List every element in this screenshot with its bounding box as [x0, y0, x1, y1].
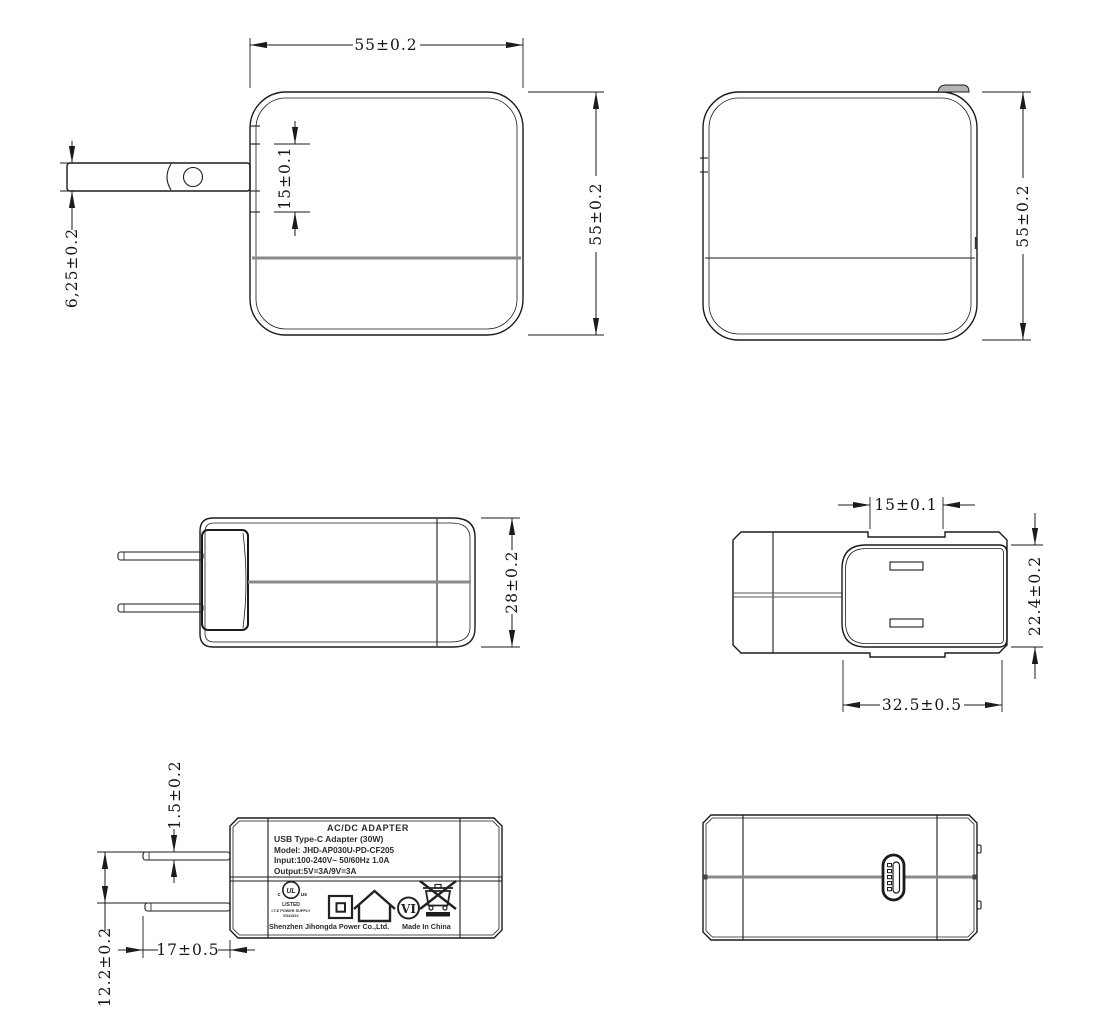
plug-blade	[67, 163, 250, 191]
ul-file-number: E341922	[283, 914, 298, 918]
plug-blade-upper	[143, 852, 230, 860]
dim-blade-width-text: 6,25±0.2	[63, 228, 81, 308]
rear-view: 55±0.2	[700, 85, 1032, 340]
ul-mark: UL c us LISTED I.T.E POWER SUPPLY E34192…	[272, 882, 311, 918]
dim-blade-width: 6,25±0.2	[60, 141, 81, 308]
label-face-view: AC/DC ADAPTER USB Type-C Adapter (30W) M…	[96, 760, 502, 1007]
dim-recess-width-text: 15±0.1	[874, 496, 937, 514]
top-view: 28±0.2	[118, 518, 521, 647]
body-outline	[733, 532, 1007, 657]
indoor-use-house-icon	[354, 891, 395, 921]
dim-base-height-text: 22.4±0.2	[1026, 556, 1044, 636]
plug-base-curve	[243, 533, 246, 628]
blade-slot-lower	[890, 619, 923, 627]
efficiency-vi-icon: VI	[398, 898, 419, 919]
dim-depth-text: 28±0.2	[503, 550, 521, 613]
front-view: 55±0.2 55±0.2 15±0.1 6,25±0.2	[60, 36, 605, 335]
ul-us: us	[301, 892, 307, 898]
dim-recess-text: 15±0.1	[276, 146, 294, 209]
class2-double-insulation-icon	[329, 896, 352, 918]
dim-width-top: 55±0.2	[250, 36, 523, 88]
label-title: AC/DC ADAPTER	[327, 823, 409, 833]
ul-listed: LISTED	[282, 902, 300, 908]
label-input: Input:100-240V~ 50/60Hz 1.0A	[274, 856, 389, 865]
ul-type: I.T.E POWER SUPPLY	[272, 909, 311, 913]
origin-text: Made In China	[402, 922, 452, 931]
dim-blade-length-text: 17±0.5	[156, 941, 219, 959]
dim-blade-thickness: 1.5±0.2	[166, 760, 184, 883]
body-outline	[250, 92, 523, 335]
plug-base-inner	[846, 549, 1004, 644]
label-subtitle: USB Type-C Adapter (30W)	[274, 834, 383, 844]
plug-blade-lower	[118, 604, 203, 612]
dim-blade-spacing-text: 12.2±0.2	[96, 927, 114, 1007]
dim-height-right-text: 55±0.2	[587, 182, 605, 245]
blade-slot-upper	[890, 562, 923, 570]
dim-width-top-text: 55±0.2	[354, 36, 417, 54]
usb-c-port	[883, 855, 904, 900]
dim-recess-width: 15±0.1	[838, 496, 975, 529]
body-outline	[703, 92, 977, 340]
blade-hole	[184, 168, 203, 187]
ul-c: c	[277, 892, 280, 898]
drawing-sheet: 55±0.2 55±0.2 15±0.1 6,25±0.2	[0, 0, 1100, 1011]
dim-recess-height: 15±0.1	[274, 121, 310, 236]
dim-height-right: 55±0.2	[982, 92, 1032, 340]
dim-depth: 28±0.2	[481, 518, 521, 647]
dim-blade-length: 17±0.5	[118, 916, 255, 959]
body-inner-seam	[709, 98, 971, 334]
label-output: Output:5V=3A/9V=3A	[274, 867, 356, 876]
manufacturer-text: Shenzhen Jihongda Power Co.,Ltd.	[269, 922, 389, 931]
rating-label: AC/DC ADAPTER USB Type-C Adapter (30W) M…	[274, 823, 409, 876]
output-face-view	[703, 815, 981, 940]
plug-blade-upper	[118, 552, 203, 560]
dim-base-width: 32.5±0.5	[843, 660, 1002, 714]
plug-blade-lower	[145, 903, 230, 911]
parting-cap-left	[703, 875, 708, 880]
plug-base-outline	[842, 545, 1007, 647]
efficiency-vi-text: VI	[400, 902, 416, 916]
weee-crossed-bin-icon	[420, 881, 456, 917]
dim-blade-spacing: 12.2±0.2	[96, 852, 147, 1007]
top-tab	[938, 85, 969, 92]
dim-base-width-text: 32.5±0.5	[882, 696, 962, 714]
technical-drawing-canvas: 55±0.2 55±0.2 15±0.1 6,25±0.2	[0, 0, 1100, 1011]
edge-ticks	[700, 158, 976, 249]
dim-height-right-text: 55±0.2	[1014, 184, 1032, 247]
blade-fold-arc	[167, 164, 171, 190]
dim-height-right: 55±0.2	[528, 92, 605, 335]
bottom-view: 15±0.1 22.4±0.2 32.5±0.5	[733, 496, 1044, 714]
folding-plug-base	[202, 530, 248, 630]
parting-cap-right	[973, 875, 978, 880]
label-model: Model: JHD-AP030U-PD-CF205	[274, 846, 395, 855]
dim-base-height: 22.4±0.2	[1011, 513, 1044, 679]
ul-letters: UL	[286, 888, 295, 895]
recess-step-lines	[250, 126, 260, 212]
dim-blade-thickness-text: 1.5±0.2	[166, 760, 184, 829]
